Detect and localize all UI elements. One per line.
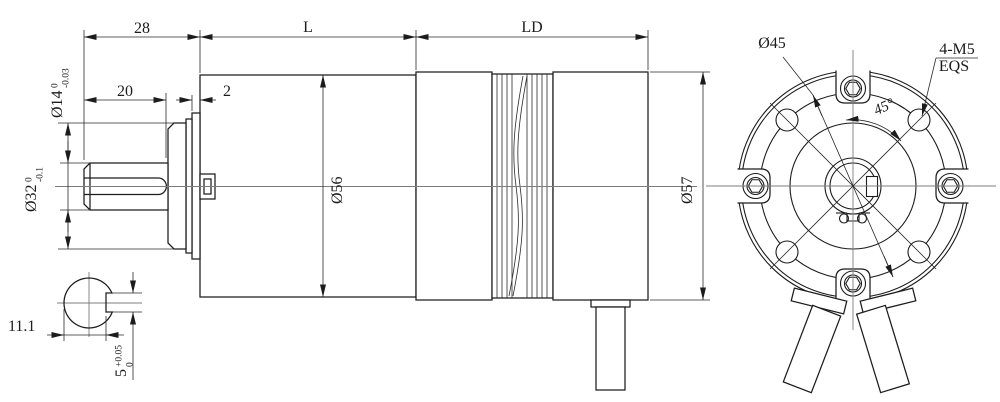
dim-pilot-height: 2 xyxy=(223,83,231,100)
svg-text:Ø32: Ø32 xyxy=(23,184,40,212)
svg-text:5: 5 xyxy=(113,369,130,377)
label-mount-holes: 4-M5 xyxy=(939,41,975,58)
dim-motor-diameter: Ø57 xyxy=(679,176,696,204)
svg-text:+0.05: +0.05 xyxy=(115,345,125,367)
cable-side xyxy=(596,307,625,390)
motor-rear-section xyxy=(553,72,648,300)
dim-gearbox-diameter: Ø56 xyxy=(329,176,346,204)
dim-shaft-diameter: Ø14 0 -0.03 xyxy=(49,68,72,118)
gearbox-body xyxy=(200,75,416,297)
dim-motor-length: LD xyxy=(521,19,542,36)
dim-bolt-circle: Ø45 xyxy=(758,35,786,52)
svg-text:-0.1: -0.1 xyxy=(36,167,46,182)
gear-motor-technical-drawing: 28 L LD 20 2 Ø14 0 -0.03 Ø32 0 -0.1 Ø56 … xyxy=(0,0,1000,402)
shaft-section-detail: 11.1 5 +0.05 0 xyxy=(8,272,142,380)
side-view: 28 L LD 20 2 Ø14 0 -0.03 Ø32 0 -0.1 Ø56 … xyxy=(23,19,710,390)
dim-shaft-extension: 28 xyxy=(134,20,150,37)
dim-flat-depth: 5 +0.05 0 xyxy=(113,345,136,377)
svg-text:45°: 45° xyxy=(871,96,897,119)
pilot-flange xyxy=(192,113,200,259)
front-keyway xyxy=(867,177,878,197)
dim-boss-diameter: Ø32 0 -0.1 xyxy=(23,167,46,212)
svg-text:Ø57: Ø57 xyxy=(679,176,696,204)
drawing-svg: 28 L LD 20 2 Ø14 0 -0.03 Ø32 0 -0.1 Ø56 … xyxy=(0,0,1000,402)
dim-shaft-length: 20 xyxy=(117,83,133,100)
label-mount-holes-note: EQS xyxy=(939,58,969,75)
dim-gearbox-length: L xyxy=(303,19,313,36)
cable-front-left xyxy=(783,305,840,392)
svg-text:0: 0 xyxy=(25,177,35,182)
motor-ribbed-section xyxy=(492,74,553,298)
svg-text:Ø14: Ø14 xyxy=(49,90,66,118)
cable-clamp-plate-side xyxy=(591,300,630,307)
front-view: Ø45 4-M5 EQS 45° xyxy=(706,35,996,393)
shaft-boss xyxy=(168,123,186,249)
step-ring xyxy=(186,119,192,253)
svg-text:0: 0 xyxy=(126,362,136,367)
svg-text:Ø56: Ø56 xyxy=(329,176,346,204)
motor-front-section xyxy=(416,72,492,300)
dim-flat-width: 11.1 xyxy=(8,318,35,335)
cable-front-right xyxy=(857,305,910,392)
svg-text:-0.03: -0.03 xyxy=(62,68,72,88)
svg-text:0: 0 xyxy=(51,83,61,88)
dim-hole-angle: 45° xyxy=(871,96,897,119)
